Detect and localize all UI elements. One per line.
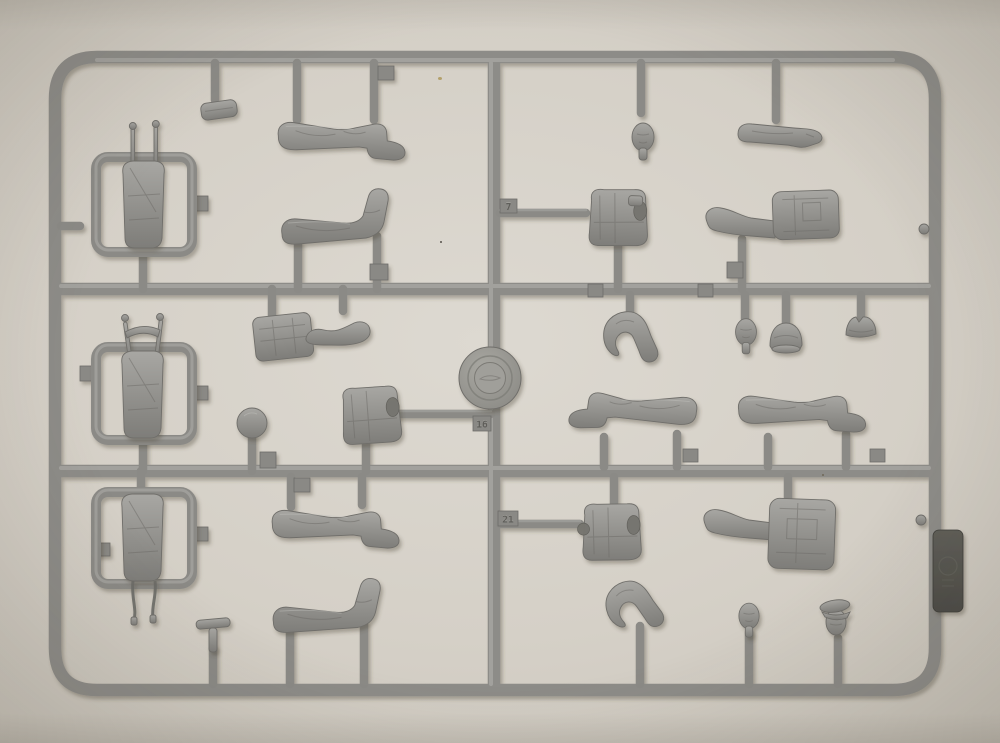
- dust-speck: [822, 474, 824, 476]
- dust-speck: [440, 241, 442, 243]
- manufacturer-label-tab: [933, 530, 963, 612]
- part-leg-right-2: [738, 394, 866, 432]
- part-rider-torso-1: [123, 121, 165, 249]
- part-leg-top-1: [277, 120, 406, 160]
- part-bent-arm-open-hand: [602, 575, 666, 635]
- gate-step: [370, 264, 388, 280]
- part-pouch: [200, 99, 238, 121]
- part-number-tag-21: 21 21: [498, 511, 518, 526]
- part-head-3: [739, 603, 759, 637]
- part-torso-gear-1: [589, 188, 649, 247]
- part-number-tag-illegible: [698, 284, 713, 297]
- part-leg-right-1: [569, 392, 698, 432]
- gate-step: [260, 452, 276, 468]
- gate-step: [294, 478, 310, 492]
- part-torso-arm-assembly-1: [706, 190, 840, 240]
- part-torso-plain: [342, 386, 402, 445]
- part-backpack-arm: [252, 312, 370, 362]
- part-head-top: [632, 123, 654, 160]
- gate-step: [378, 66, 394, 80]
- part-leg-bottom-1: [271, 508, 400, 548]
- part-head-peaked-cap: [819, 598, 850, 635]
- part-arm-straight: [738, 124, 822, 147]
- part-number-tag-illegible: [588, 284, 603, 297]
- part-leg-top-2: [282, 189, 389, 244]
- sprue-photo: 7 7 16 16 21 21: [0, 0, 1000, 743]
- part-number-tag-16: 16 16: [473, 416, 491, 431]
- sprue-drawing: 7 7 16 16 21 21: [0, 0, 1000, 743]
- part-side-cap: [846, 317, 876, 337]
- dust-speck: [438, 77, 442, 80]
- part-helmet-ball: [237, 408, 267, 438]
- gate-nub: [916, 515, 926, 525]
- part-torso-gear-2: [577, 503, 642, 561]
- part-number-tag-7: 7 7: [500, 199, 517, 213]
- mold-stamp: [459, 347, 521, 409]
- svg-text:21: 21: [502, 515, 514, 526]
- svg-text:7: 7: [506, 202, 512, 213]
- part-field-cap: [770, 323, 802, 353]
- part-rider-torso-3: [122, 494, 164, 625]
- part-number-tag-illegible: [683, 449, 698, 462]
- part-leg-bottom-2: [273, 577, 381, 634]
- gate-nub: [919, 224, 929, 234]
- gate-step: [727, 262, 743, 278]
- part-entrenching-tool: [196, 618, 231, 652]
- part-number-tag-illegible: [870, 449, 885, 462]
- part-rider-torso-2: [122, 314, 164, 439]
- part-bent-arm-1: [604, 312, 658, 362]
- svg-text:16: 16: [476, 420, 488, 431]
- part-head-2: [736, 319, 757, 354]
- part-torso-arm-assembly-2: [704, 498, 836, 570]
